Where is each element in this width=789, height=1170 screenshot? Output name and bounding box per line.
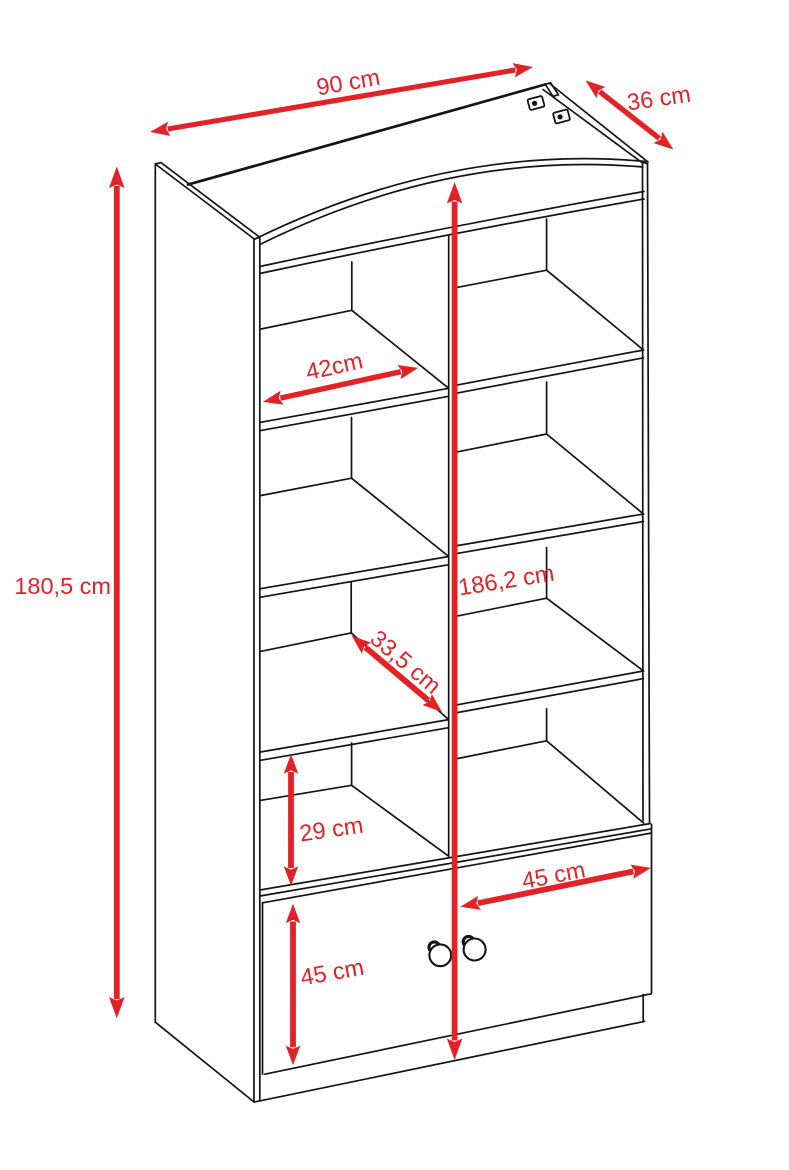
svg-text:186,2 cm: 186,2 cm xyxy=(456,560,556,601)
svg-text:33,5 cm: 33,5 cm xyxy=(365,625,446,699)
svg-text:36 cm: 36 cm xyxy=(625,81,692,116)
svg-text:29 cm: 29 cm xyxy=(298,812,365,847)
svg-text:45 cm: 45 cm xyxy=(298,954,366,991)
svg-text:45 cm: 45 cm xyxy=(520,856,588,894)
svg-text:180,5 cm: 180,5 cm xyxy=(14,573,111,599)
